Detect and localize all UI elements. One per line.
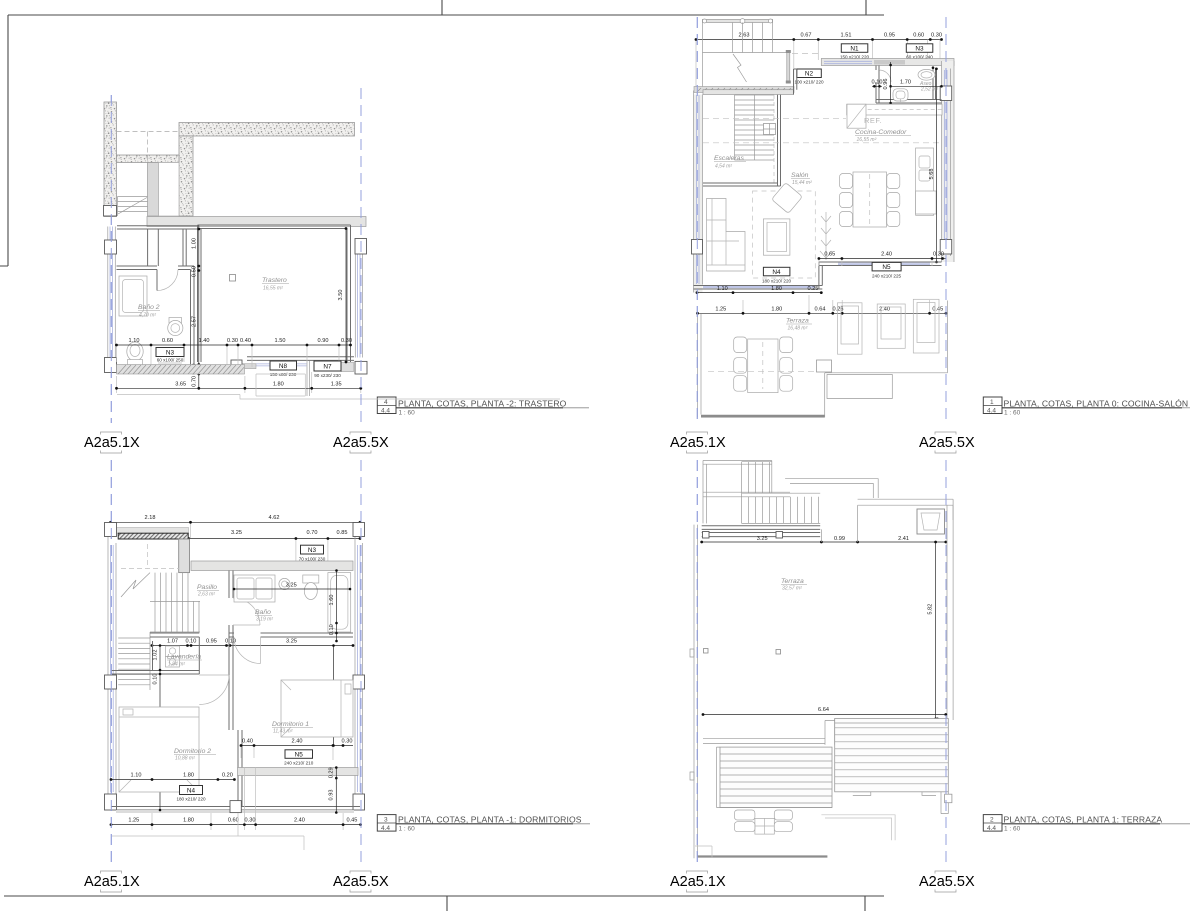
svg-text:A2a5.1X: A2a5.1X (670, 874, 726, 890)
svg-text:15,44 m²: 15,44 m² (792, 180, 812, 186)
svg-text:60 x100/ 250: 60 x100/ 250 (157, 358, 184, 363)
svg-text:1.35: 1.35 (331, 381, 342, 387)
svg-text:A2a5.1X: A2a5.1X (84, 874, 140, 890)
svg-text:1.60: 1.60 (329, 595, 335, 606)
svg-text:A2a5.5X: A2a5.5X (333, 435, 389, 451)
svg-text:0.60: 0.60 (228, 818, 239, 824)
svg-text:0.30: 0.30 (933, 252, 944, 258)
svg-text:3.25: 3.25 (231, 530, 242, 536)
svg-text:1.40: 1.40 (199, 338, 210, 344)
svg-text:1 : 60: 1 : 60 (399, 826, 416, 833)
svg-text:Lavandería: Lavandería (167, 654, 201, 661)
svg-text:0.30: 0.30 (342, 739, 353, 745)
svg-text:0.30: 0.30 (245, 818, 256, 824)
svg-text:0.26: 0.26 (833, 306, 844, 312)
svg-text:16,48 m²: 16,48 m² (788, 326, 808, 332)
svg-text:1 : 60: 1 : 60 (1004, 410, 1021, 417)
svg-text:1.00: 1.00 (192, 238, 198, 249)
svg-text:0.70: 0.70 (192, 376, 198, 387)
svg-text:N5: N5 (295, 751, 304, 758)
svg-text:0.20: 0.20 (222, 773, 233, 779)
svg-text:N1: N1 (850, 45, 859, 52)
svg-text:0.65: 0.65 (824, 252, 835, 258)
svg-text:A2a5.5X: A2a5.5X (919, 435, 975, 451)
svg-text:5.82: 5.82 (928, 604, 934, 615)
svg-text:Baño: Baño (255, 609, 271, 616)
svg-text:4,70 m²: 4,70 m² (139, 313, 156, 319)
svg-text:100 x210/ 220: 100 x210/ 220 (794, 80, 824, 85)
svg-text:0.25: 0.25 (807, 286, 818, 292)
svg-text:1.50: 1.50 (275, 338, 286, 344)
svg-text:5.68: 5.68 (929, 169, 935, 180)
svg-text:Dormitorio 1: Dormitorio 1 (272, 721, 309, 728)
svg-text:0.50: 0.50 (192, 266, 198, 277)
svg-text:1.25: 1.25 (128, 818, 139, 824)
svg-text:1.10: 1.10 (129, 338, 140, 344)
svg-text:10,88 m²: 10,88 m² (175, 756, 195, 762)
svg-text:0.30: 0.30 (931, 33, 942, 39)
svg-text:A2a5.5X: A2a5.5X (333, 874, 389, 890)
svg-text:Terraza: Terraza (781, 578, 804, 585)
svg-text:N7: N7 (323, 363, 332, 370)
svg-text:3: 3 (384, 817, 388, 824)
svg-text:1 : 60: 1 : 60 (1004, 826, 1021, 833)
svg-text:1.25: 1.25 (715, 306, 726, 312)
svg-text:1.07: 1.07 (167, 639, 178, 645)
svg-text:N3: N3 (166, 349, 175, 356)
svg-text:4,54 m²: 4,54 m² (715, 164, 732, 170)
svg-text:1.80: 1.80 (771, 286, 782, 292)
svg-text:4.4: 4.4 (381, 825, 390, 832)
svg-text:2.40: 2.40 (294, 818, 305, 824)
svg-text:0.99: 0.99 (834, 536, 845, 542)
svg-text:2.40: 2.40 (881, 252, 892, 258)
svg-text:A2a5.1X: A2a5.1X (84, 435, 140, 451)
svg-text:Salón: Salón (791, 172, 809, 179)
svg-text:1.10: 1.10 (131, 773, 142, 779)
svg-text:0.96: 0.96 (883, 79, 889, 90)
svg-text:4: 4 (384, 399, 388, 406)
svg-text:3.65: 3.65 (175, 381, 186, 387)
svg-text:0.10: 0.10 (185, 639, 196, 645)
svg-text:Dormitorio 2: Dormitorio 2 (174, 748, 211, 755)
svg-text:6.64: 6.64 (818, 707, 829, 713)
svg-text:2.41: 2.41 (898, 536, 909, 542)
svg-text:180 x210/ 220: 180 x210/ 220 (176, 797, 206, 802)
svg-text:240 x210/ 210: 240 x210/ 210 (284, 761, 314, 766)
svg-text:16,55 m²: 16,55 m² (263, 286, 283, 292)
svg-text:Terraza: Terraza (786, 318, 809, 325)
svg-text:0.45: 0.45 (932, 306, 943, 312)
svg-text:1.10: 1.10 (717, 286, 728, 292)
svg-text:A2a5.5X: A2a5.5X (919, 874, 975, 890)
svg-text:0.90: 0.90 (318, 338, 329, 344)
svg-text:0.10: 0.10 (872, 80, 883, 86)
svg-text:1.80: 1.80 (771, 306, 782, 312)
svg-text:N4: N4 (772, 269, 781, 276)
svg-text:0.70: 0.70 (307, 530, 318, 536)
svg-text:0.29: 0.29 (329, 767, 335, 778)
svg-text:0.67: 0.67 (801, 33, 812, 39)
svg-text:240 x210/ 225: 240 x210/ 225 (872, 274, 902, 279)
svg-text:Escaleras: Escaleras (714, 155, 744, 162)
svg-text:0.60: 0.60 (913, 33, 924, 39)
svg-text:3.50: 3.50 (338, 290, 344, 301)
svg-text:N2: N2 (805, 71, 814, 78)
svg-text:4.4: 4.4 (987, 408, 996, 415)
svg-text:1.70: 1.70 (900, 80, 911, 86)
svg-text:1.80: 1.80 (183, 818, 194, 824)
svg-text:N3: N3 (915, 45, 924, 52)
svg-text:0.85: 0.85 (337, 530, 348, 536)
svg-text:Trastero: Trastero (262, 277, 287, 284)
svg-text:2: 2 (990, 817, 994, 824)
svg-text:0.95: 0.95 (206, 639, 217, 645)
svg-text:1.80: 1.80 (183, 773, 194, 779)
svg-text:PLANTA, COTAS, PLANTA -1: DORM: PLANTA, COTAS, PLANTA -1: DORMITORIOS (398, 815, 582, 825)
svg-text:2.40: 2.40 (292, 739, 303, 745)
svg-text:0.30: 0.30 (341, 338, 352, 344)
svg-text:0.40: 0.40 (242, 739, 253, 745)
svg-text:150 x80/ 230: 150 x80/ 230 (270, 372, 297, 377)
svg-text:2.63: 2.63 (739, 33, 750, 39)
svg-text:0.93: 0.93 (329, 790, 335, 801)
svg-text:3,19 m²: 3,19 m² (256, 617, 273, 623)
svg-text:Pasillo: Pasillo (197, 584, 217, 591)
svg-text:Cocina-Comedor: Cocina-Comedor (855, 129, 907, 136)
svg-text:1.02: 1.02 (153, 650, 159, 661)
svg-text:4.62: 4.62 (269, 515, 280, 521)
svg-text:Baño 2: Baño 2 (138, 304, 160, 311)
svg-text:3.25: 3.25 (286, 639, 297, 645)
svg-text:REF.: REF. (864, 116, 882, 125)
svg-text:3.25: 3.25 (286, 583, 297, 589)
svg-text:2.18: 2.18 (145, 515, 156, 521)
svg-text:0.45: 0.45 (346, 818, 357, 824)
svg-text:1.80: 1.80 (273, 381, 284, 387)
svg-text:4.4: 4.4 (381, 408, 390, 415)
svg-text:0.10: 0.10 (153, 674, 159, 685)
svg-text:0.10: 0.10 (329, 624, 335, 635)
svg-text:3.25: 3.25 (757, 536, 768, 542)
svg-text:N3: N3 (308, 547, 317, 554)
svg-text:N4: N4 (187, 787, 196, 794)
svg-text:1 : 60: 1 : 60 (399, 410, 416, 417)
svg-text:N8: N8 (279, 363, 288, 370)
svg-text:A2a5.1X: A2a5.1X (670, 435, 726, 451)
svg-text:0.60: 0.60 (162, 338, 173, 344)
svg-text:PLANTA, COTAS, PLANTA -2: TRAS: PLANTA, COTAS, PLANTA -2: TRASTERO (398, 399, 567, 409)
svg-text:0.40: 0.40 (240, 338, 251, 344)
svg-text:1.51: 1.51 (841, 33, 852, 39)
svg-text:0.95: 0.95 (884, 33, 895, 39)
svg-text:180 x210/ 220: 180 x210/ 220 (762, 278, 792, 283)
svg-text:PLANTA, COTAS, PLANTA 0: COCIN: PLANTA, COTAS, PLANTA 0: COCINA-SALÓN (1004, 399, 1189, 409)
svg-text:16,55 m²: 16,55 m² (857, 137, 877, 143)
svg-text:PLANTA, COTAS, PLANTA 1: TERRA: PLANTA, COTAS, PLANTA 1: TERRAZA (1004, 815, 1163, 825)
svg-text:1: 1 (990, 399, 994, 406)
svg-text:2,63 m²: 2,63 m² (197, 592, 215, 598)
svg-text:11,43 m²: 11,43 m² (273, 729, 293, 735)
svg-text:32,57 m²: 32,57 m² (782, 586, 802, 592)
svg-text:90 x230/ 230: 90 x230/ 230 (314, 373, 341, 378)
svg-text:2,52 m²: 2,52 m² (920, 87, 938, 93)
svg-text:0.30: 0.30 (227, 338, 238, 344)
svg-text:0.64: 0.64 (815, 306, 826, 312)
svg-text:N5: N5 (882, 264, 891, 271)
svg-text:2.57: 2.57 (192, 316, 198, 327)
svg-text:4.4: 4.4 (987, 825, 996, 832)
svg-text:1,84 m²: 1,84 m² (168, 662, 185, 668)
